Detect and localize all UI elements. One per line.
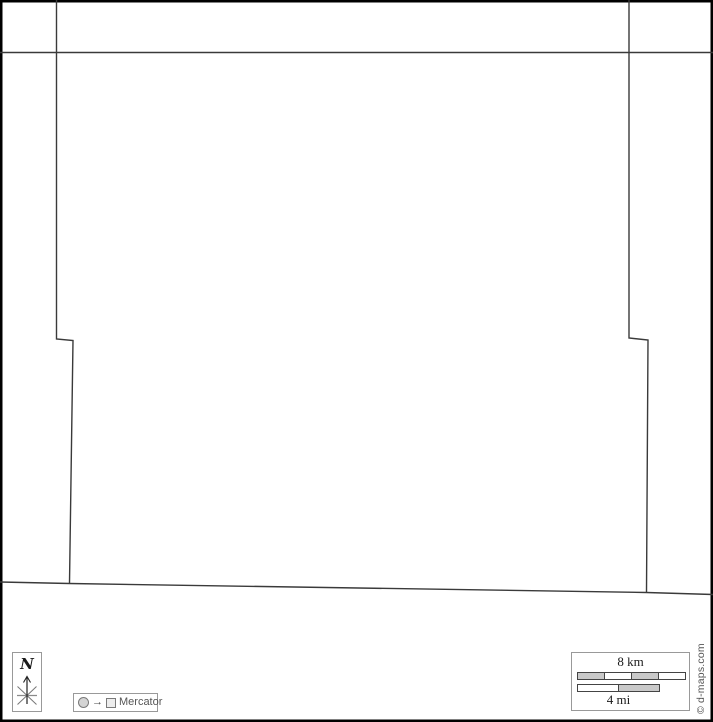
- map-frame: [0, 0, 713, 722]
- square-icon: [106, 698, 116, 708]
- scale-segment: [605, 673, 632, 679]
- north-label: N: [13, 656, 41, 673]
- scale-km-label: 8 km: [572, 655, 689, 669]
- scale-mi-label: 4 mi: [577, 693, 660, 707]
- south-boundary-line: [0, 582, 713, 595]
- north-arrow-icon: [13, 673, 41, 709]
- map-canvas: N → Mercator 8 km 4 mi © d-maps.com: [0, 0, 713, 722]
- scale-segment: [659, 673, 685, 679]
- county-outline-svg: [0, 0, 713, 722]
- scale-km-bar: [577, 672, 686, 680]
- scale-segment: [632, 673, 659, 679]
- projection-legend: → Mercator: [73, 693, 158, 712]
- scale-segment: [578, 673, 605, 679]
- west-boundary-line: [57, 0, 74, 583]
- scale-mi-bar: [577, 684, 660, 692]
- copyright-label: © d-maps.com: [695, 643, 707, 714]
- projection-label: Mercator: [119, 697, 162, 708]
- circle-icon: [78, 697, 89, 708]
- arrow-right-icon: →: [92, 697, 103, 708]
- east-boundary-line: [629, 0, 648, 593]
- compass-box: N: [12, 652, 42, 712]
- scale-bar-box: 8 km 4 mi: [571, 652, 690, 711]
- scale-segment: [619, 685, 659, 691]
- scale-segment: [578, 685, 619, 691]
- boundary-lines-group: [0, 0, 713, 595]
